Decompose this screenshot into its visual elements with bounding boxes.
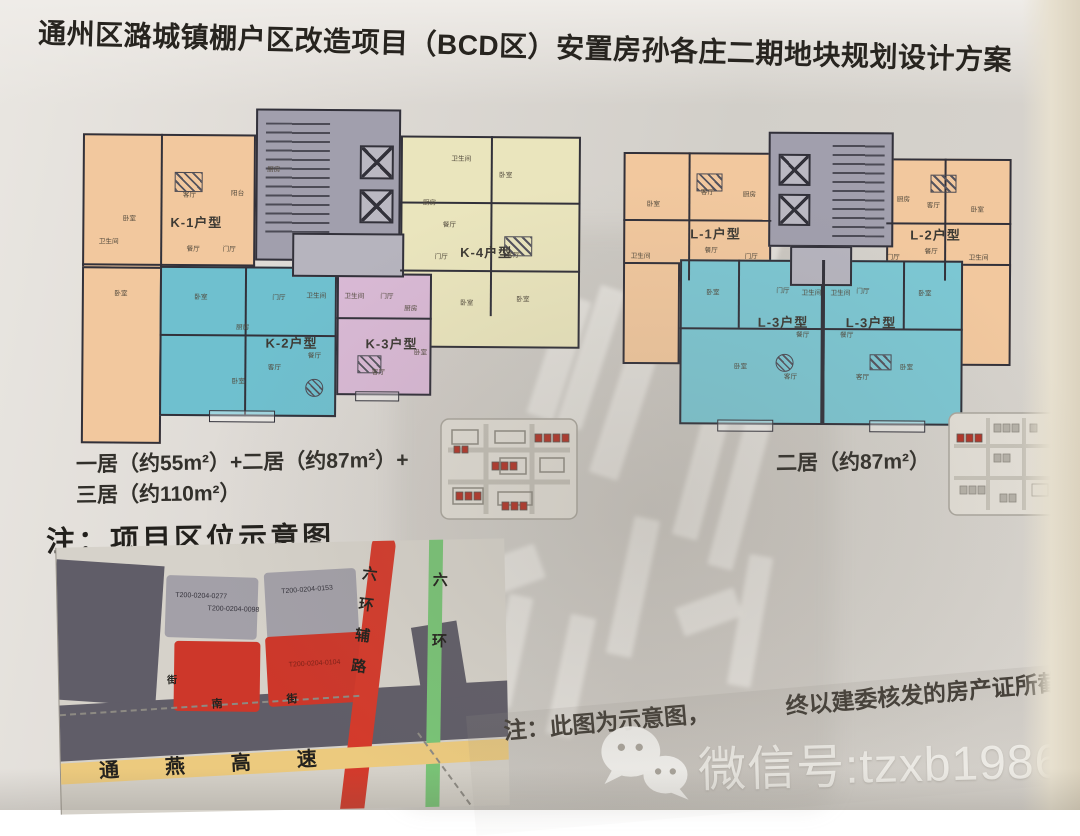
left-plan-summary-line1: 一居（约55m²）+二居（约87m²）+ bbox=[76, 444, 409, 479]
room-label: 客厅 bbox=[784, 372, 797, 382]
room-label: 厨房 bbox=[404, 304, 417, 314]
room-label: 厨房 bbox=[897, 195, 910, 205]
room-label: 卧室 bbox=[706, 288, 719, 298]
room-label: 餐厅 bbox=[187, 244, 200, 254]
room-label: 餐厅 bbox=[840, 330, 853, 340]
room-label: 餐厅 bbox=[704, 246, 717, 256]
room-label: 卫生间 bbox=[830, 288, 850, 298]
room-label: 卧室 bbox=[499, 170, 512, 180]
room-label: 客厅 bbox=[856, 372, 869, 382]
map-parcel-dark bbox=[55, 559, 164, 706]
bottom-shadow bbox=[0, 768, 1080, 810]
road-label-ring: 六环 bbox=[427, 572, 450, 694]
unit-label-l3-left: L-3户型 bbox=[758, 312, 809, 331]
room-label: 门厅 bbox=[223, 245, 236, 255]
room-label: 阳台 bbox=[231, 189, 244, 199]
room-labels-layer: 卧室客厅阳台餐厅门厅卫生间卧室厨房卧室厨房门厅卫生间客厅餐厅卧室卫生间门厅厨房客… bbox=[69, 103, 586, 452]
unit-label-k2: K-2户型 bbox=[265, 333, 317, 352]
room-label: 卧室 bbox=[460, 298, 473, 308]
floorplan-right-l-units: 卧室客厅厨房餐厅门厅卫生间客厅卧室厨房餐厅门厅卫生间卧室门厅卫生间餐厅客厅卧室卫… bbox=[617, 127, 1017, 431]
unit-label-l2: L-2户型 bbox=[910, 224, 961, 243]
room-label: 卧室 bbox=[918, 289, 931, 299]
room-label: 卧室 bbox=[114, 289, 127, 299]
left-plan-summary-line2: 三居（约110m²） bbox=[76, 477, 241, 509]
room-label: 餐厅 bbox=[796, 330, 809, 340]
room-label: 餐厅 bbox=[443, 220, 456, 230]
unit-label-k4: K-4户型 bbox=[460, 242, 512, 261]
paper-edge bbox=[1022, 0, 1080, 810]
unit-label-l1: L-1户型 bbox=[690, 223, 741, 242]
room-label: 卫生间 bbox=[99, 237, 119, 247]
room-label: 厨房 bbox=[236, 323, 249, 333]
room-label: 门厅 bbox=[272, 293, 285, 303]
room-label: 卫生间 bbox=[451, 154, 471, 164]
room-label: 门厅 bbox=[380, 292, 393, 302]
room-label: 卧室 bbox=[900, 363, 913, 373]
unit-label-l3-right: L-3户型 bbox=[846, 312, 897, 331]
room-label: 厨房 bbox=[267, 165, 280, 175]
room-label: 卧室 bbox=[123, 214, 136, 224]
room-label: 卧室 bbox=[647, 199, 660, 209]
unit-label-k3: K-3户型 bbox=[365, 333, 417, 352]
room-label: 卧室 bbox=[232, 377, 245, 387]
room-label: 门厅 bbox=[776, 286, 789, 296]
room-label: 卫生间 bbox=[631, 251, 651, 261]
room-label: 客厅 bbox=[372, 368, 385, 378]
room-label: 门厅 bbox=[744, 252, 757, 262]
room-label: 客厅 bbox=[183, 190, 196, 200]
room-label: 门厅 bbox=[434, 252, 447, 262]
room-label: 卧室 bbox=[194, 292, 207, 302]
room-label: 客厅 bbox=[927, 201, 940, 211]
floorplan-left-k-units: 卧室客厅阳台餐厅门厅卫生间卧室厨房卧室厨房门厅卫生间客厅餐厅卧室卫生间门厅厨房客… bbox=[69, 103, 586, 452]
site-plan-thumbnail-left bbox=[440, 418, 578, 525]
room-label: 餐厅 bbox=[308, 351, 321, 361]
room-label: 餐厅 bbox=[924, 247, 937, 257]
room-label: 卧室 bbox=[734, 362, 747, 372]
room-label: 卫生间 bbox=[344, 291, 364, 301]
room-label: 门厅 bbox=[886, 253, 899, 263]
room-label: 卧室 bbox=[516, 295, 529, 305]
room-label: 客厅 bbox=[701, 188, 714, 198]
room-labels-layer: 卧室客厅厨房餐厅门厅卫生间客厅卧室厨房餐厅门厅卫生间卧室门厅卫生间餐厅客厅卧室卫… bbox=[617, 127, 1017, 431]
room-label: 厨房 bbox=[743, 190, 756, 200]
right-plan-summary: 二居（约87m²） bbox=[776, 445, 930, 477]
room-label: 卧室 bbox=[971, 205, 984, 215]
room-label: 客厅 bbox=[268, 363, 281, 373]
room-label: 卫生间 bbox=[306, 291, 326, 301]
street-label-vertical: 街 bbox=[167, 671, 177, 686]
unit-label-k1: K-1户型 bbox=[170, 212, 222, 231]
map-parcel-gray bbox=[264, 568, 360, 641]
room-label: 厨房 bbox=[423, 198, 436, 208]
room-label: 门厅 bbox=[856, 286, 869, 296]
poster-photo: 通州区潞城镇棚户区改造项目（BCD区）安置房孙各庄二期地块规划设计方案 卧室客厅… bbox=[0, 0, 1080, 810]
room-label: 卫生间 bbox=[801, 288, 821, 298]
room-label: 卫生间 bbox=[969, 253, 989, 263]
